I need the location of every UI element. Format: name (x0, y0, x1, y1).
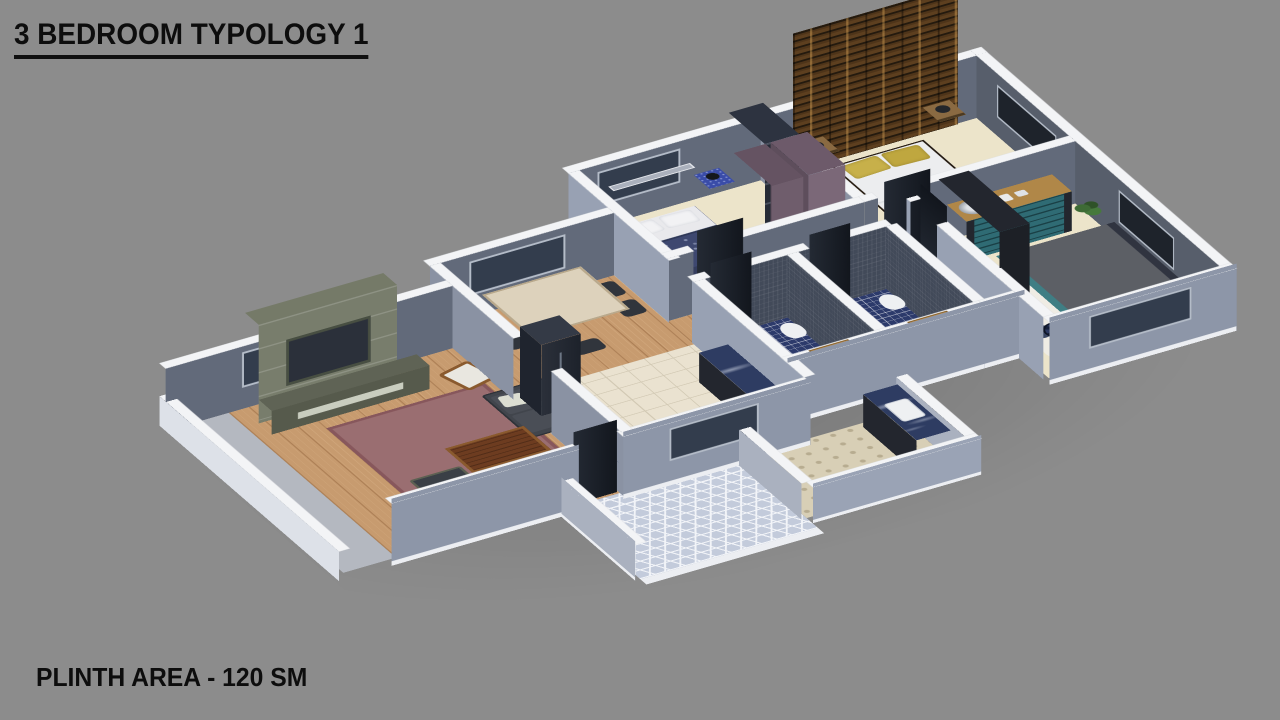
wall-bath-north-faceC (849, 225, 892, 300)
floor-plan-3d (87, 100, 1280, 662)
stage: 3 BEDROOM TYPOLOGY 1 PLINTH AREA - 120 S… (0, 0, 1280, 720)
wall-bed2-front-faceA (667, 251, 693, 321)
wall-corr2-front-face (985, 290, 1024, 369)
sideboard-decor (1013, 189, 1029, 197)
page-title: 3 BEDROOM TYPOLOGY 1 (14, 18, 369, 59)
plinth-area-label: PLINTH AREA - 120 SM (36, 662, 307, 693)
